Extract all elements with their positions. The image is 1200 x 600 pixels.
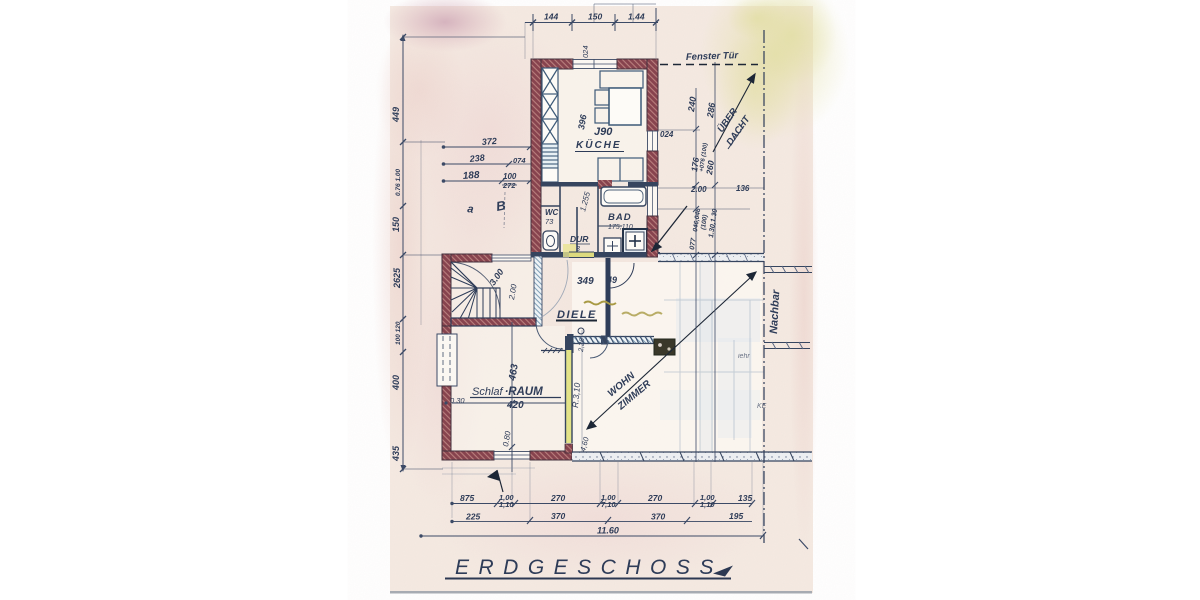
svg-text:11.60: 11.60 xyxy=(597,526,619,536)
svg-text:DIELE: DIELE xyxy=(557,309,597,321)
svg-text:225: 225 xyxy=(465,512,480,522)
svg-text:024: 024 xyxy=(581,45,590,58)
svg-text:370: 370 xyxy=(651,512,665,522)
svg-text:1.44: 1.44 xyxy=(628,12,645,22)
svg-text:Fenster Tür: Fenster Tür xyxy=(686,50,740,63)
svg-text:875: 875 xyxy=(460,493,474,503)
svg-text:272: 272 xyxy=(502,181,516,190)
svg-text:136: 136 xyxy=(736,184,750,193)
svg-text:Nachbar: Nachbar xyxy=(768,289,782,334)
svg-text:DUR: DUR xyxy=(570,234,589,244)
svg-text:ERDGESCHOSS: ERDGESCHOSS xyxy=(455,556,723,579)
svg-text:iehr: iehr xyxy=(738,353,750,360)
svg-text:135: 135 xyxy=(738,493,752,503)
svg-text:WC: WC xyxy=(545,208,559,217)
svg-text:195: 195 xyxy=(729,511,743,521)
svg-text:150: 150 xyxy=(391,217,401,232)
svg-text:270: 270 xyxy=(550,493,565,503)
svg-text:449: 449 xyxy=(391,107,401,123)
svg-text:238: 238 xyxy=(468,152,485,164)
svg-text:024: 024 xyxy=(660,130,674,139)
svg-text:Schlaf: Schlaf xyxy=(472,386,504,398)
svg-text:49: 49 xyxy=(606,275,617,285)
svg-text:KE: KE xyxy=(757,403,767,410)
svg-text:∙RAUM: ∙RAUM xyxy=(505,386,543,398)
svg-text:1,10: 1,10 xyxy=(499,500,514,509)
svg-text:400: 400 xyxy=(391,375,401,391)
svg-text:370: 370 xyxy=(551,511,565,521)
svg-text:7,10: 7,10 xyxy=(601,500,616,509)
svg-text:270: 270 xyxy=(647,493,662,503)
svg-text:100 120: 100 120 xyxy=(395,321,402,345)
svg-text:188: 188 xyxy=(462,170,480,182)
svg-text:260: 260 xyxy=(704,160,716,177)
svg-text:100: 100 xyxy=(503,172,517,181)
svg-text:074: 074 xyxy=(513,156,526,165)
svg-text:0.30: 0.30 xyxy=(450,396,465,405)
svg-text:435: 435 xyxy=(391,445,401,462)
svg-text:150: 150 xyxy=(588,12,602,22)
svg-text:2.00: 2.00 xyxy=(690,185,707,194)
svg-text:2625: 2625 xyxy=(392,267,402,289)
svg-text:KÜCHE: KÜCHE xyxy=(576,138,622,151)
svg-text:349: 349 xyxy=(577,276,594,287)
svg-text:J90: J90 xyxy=(594,126,613,138)
svg-text:1,10: 1,10 xyxy=(700,500,715,509)
svg-text:73: 73 xyxy=(545,217,554,226)
svg-text:0.76 1.00: 0.76 1.00 xyxy=(395,169,402,196)
svg-text:144: 144 xyxy=(544,12,558,22)
svg-text:BAD: BAD xyxy=(608,212,632,223)
svg-text:372: 372 xyxy=(481,136,497,147)
